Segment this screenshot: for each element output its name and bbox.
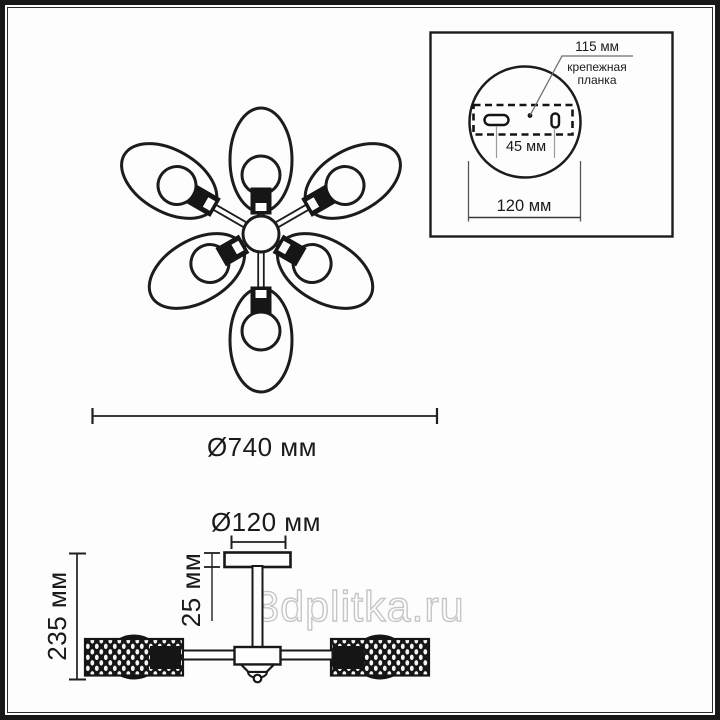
mount-slot-vertical: [552, 114, 560, 128]
canopy-height-label: 25 мм: [176, 553, 206, 627]
dimension-overall-diameter: Ø740 мм: [93, 408, 438, 462]
watermark-text: 3dplitka.ru: [255, 583, 464, 631]
side-arm-right: [281, 651, 333, 660]
total-height-label: 235 мм: [42, 571, 72, 660]
socket-notch: [256, 203, 267, 211]
chandelier-top-view: [109, 108, 414, 392]
side-arm-left: [183, 651, 235, 660]
overall-diameter-label: Ø740 мм: [207, 432, 317, 462]
shade-socket-shadow: [150, 646, 181, 669]
ceiling-canopy: [225, 553, 291, 568]
petal-arm-group: [230, 108, 292, 222]
side-shade-left: [85, 635, 183, 680]
bulb: [242, 312, 280, 350]
center-body: [235, 647, 281, 665]
bracket-name-line1: крепежная: [567, 60, 626, 74]
bracket-name-line2: планка: [578, 73, 617, 87]
mount-slot-horizontal: [485, 115, 509, 125]
finial-ball: [254, 675, 262, 683]
hole-spacing-label: 45 мм: [506, 139, 546, 155]
socket-notch: [256, 290, 267, 298]
stem-rod: [253, 566, 263, 650]
center-hub: [243, 216, 279, 252]
side-shade-right: [331, 635, 429, 680]
plate-diameter-label: 120 мм: [497, 197, 552, 215]
mounting-plate-inset: 115 мм крепежная планка 45 мм 120 мм: [431, 33, 673, 237]
bracket-width-label: 115 мм: [575, 39, 619, 54]
technical-drawing-page: Ø740 мм 115 мм крепежная планка 45 мм 12…: [0, 0, 720, 720]
center-body-taper: [241, 665, 274, 673]
shade-socket-shadow: [333, 646, 364, 669]
canopy-diameter-label: Ø120 мм: [211, 507, 321, 537]
drawing-canvas: Ø740 мм 115 мм крепежная планка 45 мм 12…: [0, 0, 720, 720]
